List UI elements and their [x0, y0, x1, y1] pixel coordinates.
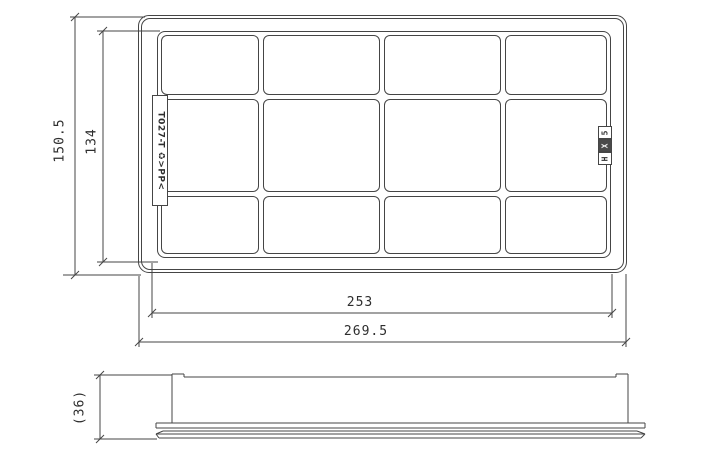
grid-cell: [505, 196, 607, 254]
grid-cell: [384, 35, 501, 95]
grid-cell: [505, 99, 607, 192]
dim-overall-width-label: 269.5: [330, 325, 402, 338]
cavity-stamp: 5 X H: [598, 126, 612, 165]
grid-cell: [161, 99, 259, 192]
grid-cell: [263, 99, 380, 192]
dim-overall-depth-label: (36): [74, 386, 87, 430]
dim-element-height-label: 134: [86, 122, 99, 162]
support-grid: [161, 35, 607, 254]
grid-cell: [384, 99, 501, 192]
mold-marking-label: T027-T ♻>PP<: [152, 95, 168, 206]
grid-cell: [505, 35, 607, 95]
drawing-canvas: T027-T ♻>PP< 5 X H 150.5 134 253 269.5 (…: [0, 0, 702, 468]
stamp-char-box: H: [598, 152, 612, 165]
stamp-char-box: 5: [598, 126, 612, 139]
dim-element-width-label: 253: [330, 296, 390, 309]
grid-cell: [263, 35, 380, 95]
grid-cell: [161, 196, 259, 254]
grid-cell: [161, 35, 259, 95]
stamp-char-box: X: [598, 139, 612, 152]
grid-cell: [384, 196, 501, 254]
mold-marking-text: T027-T ♻>PP<: [155, 111, 165, 190]
dim-overall-height-label: 150.5: [54, 111, 67, 171]
grid-cell: [263, 196, 380, 254]
